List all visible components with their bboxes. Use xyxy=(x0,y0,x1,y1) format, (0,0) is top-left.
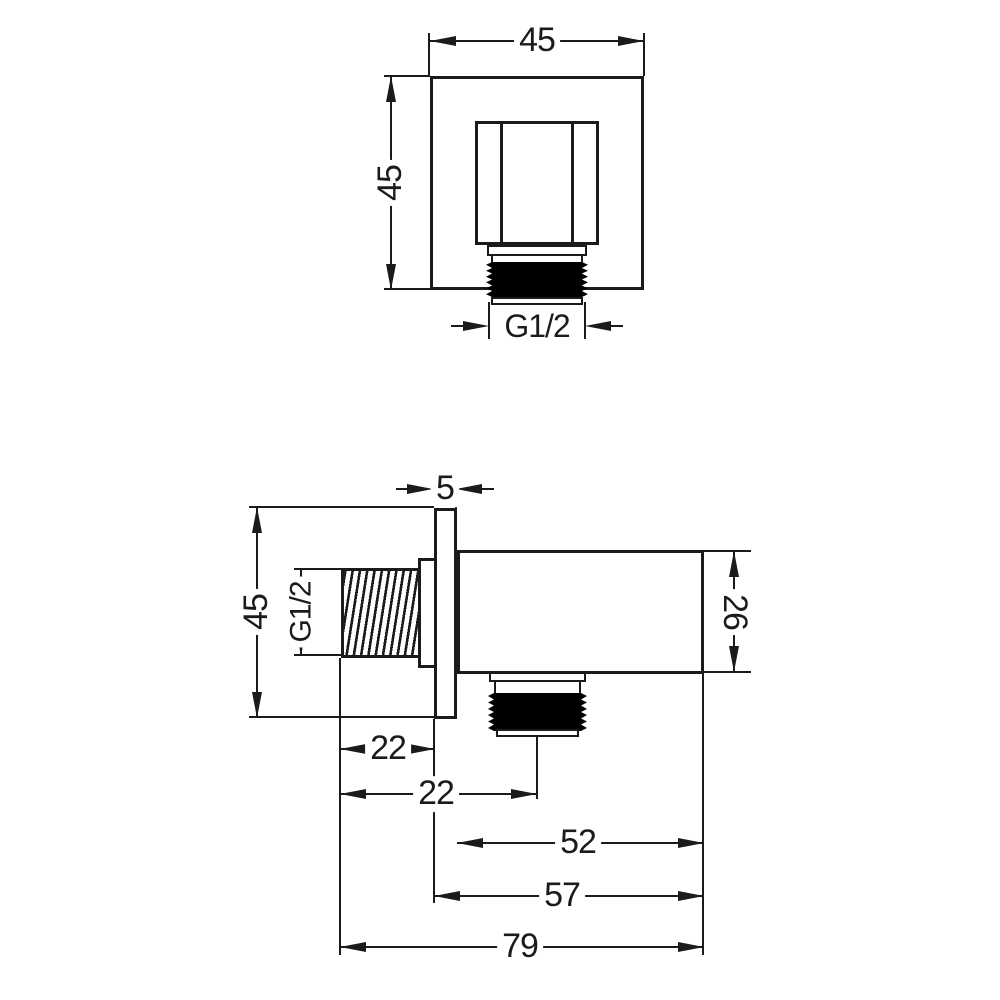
side-elbow-body xyxy=(457,550,704,674)
dim-label-body-length: 52 xyxy=(555,825,601,861)
arrowhead-up xyxy=(386,76,396,102)
dim-label-front-height: 45 xyxy=(373,160,409,206)
arrowhead-up xyxy=(729,551,739,577)
arrowhead-left xyxy=(430,36,456,46)
arrowhead-right xyxy=(678,838,704,848)
dim-label-body-height: 26 xyxy=(716,589,752,635)
arrowhead-right xyxy=(618,36,644,46)
arrowhead-left xyxy=(434,891,460,901)
extension-line xyxy=(249,506,434,508)
dim-label-total-length: 79 xyxy=(497,929,543,965)
arrow-tail xyxy=(482,488,494,490)
arrowhead-down xyxy=(729,646,739,672)
arrowhead-left xyxy=(340,789,366,799)
dim-label-front-thread: G1/2 xyxy=(499,310,574,344)
front-hex-nut-facet-line xyxy=(500,124,503,242)
arrowhead-left xyxy=(585,321,611,331)
arrowhead-down xyxy=(386,264,396,290)
arrowhead-right xyxy=(678,891,704,901)
arrowhead-right xyxy=(407,484,433,494)
arrowhead-left xyxy=(457,838,483,848)
arrowhead-right xyxy=(511,789,537,799)
front-hex-nut xyxy=(475,121,599,245)
extension-line xyxy=(702,674,704,955)
side-wall-plate xyxy=(434,508,457,719)
side-outlet-thread-black xyxy=(488,693,587,731)
arrowhead-up xyxy=(252,507,262,533)
extension-line xyxy=(339,658,341,955)
arrow-tail xyxy=(609,325,623,327)
extension-line xyxy=(704,671,751,673)
technical-drawing-canvas: 45 45 G1/2 5 45 G1/2 26 xyxy=(0,0,1000,1000)
dim-label-thread-length: 22 xyxy=(365,731,411,767)
arrowhead-right xyxy=(463,321,489,331)
arrowhead-left xyxy=(340,942,366,952)
dim-label-body-with-plate: 57 xyxy=(539,878,585,914)
dim-label-plate-thickness: 5 xyxy=(431,471,459,507)
side-wall-pipe-thread xyxy=(341,568,418,658)
arrowhead-left xyxy=(456,484,482,494)
arrowhead-right xyxy=(678,942,704,952)
arrowhead-left xyxy=(340,744,366,754)
arrowhead-down xyxy=(252,692,262,718)
front-hex-nut-facet-line xyxy=(571,124,574,242)
dim-label-front-width: 45 xyxy=(514,23,560,59)
extension-line xyxy=(249,716,434,718)
side-outlet-ring-top xyxy=(494,680,581,695)
dim-label-side-thread: G1/2 xyxy=(285,576,317,647)
extension-line xyxy=(704,550,751,552)
dim-label-outlet-center: 22 xyxy=(413,776,459,812)
front-thread-black xyxy=(486,262,588,297)
front-connector-ring-bottom xyxy=(491,297,583,305)
dim-label-side-height: 45 xyxy=(239,589,275,635)
arrowhead-right xyxy=(409,744,435,754)
